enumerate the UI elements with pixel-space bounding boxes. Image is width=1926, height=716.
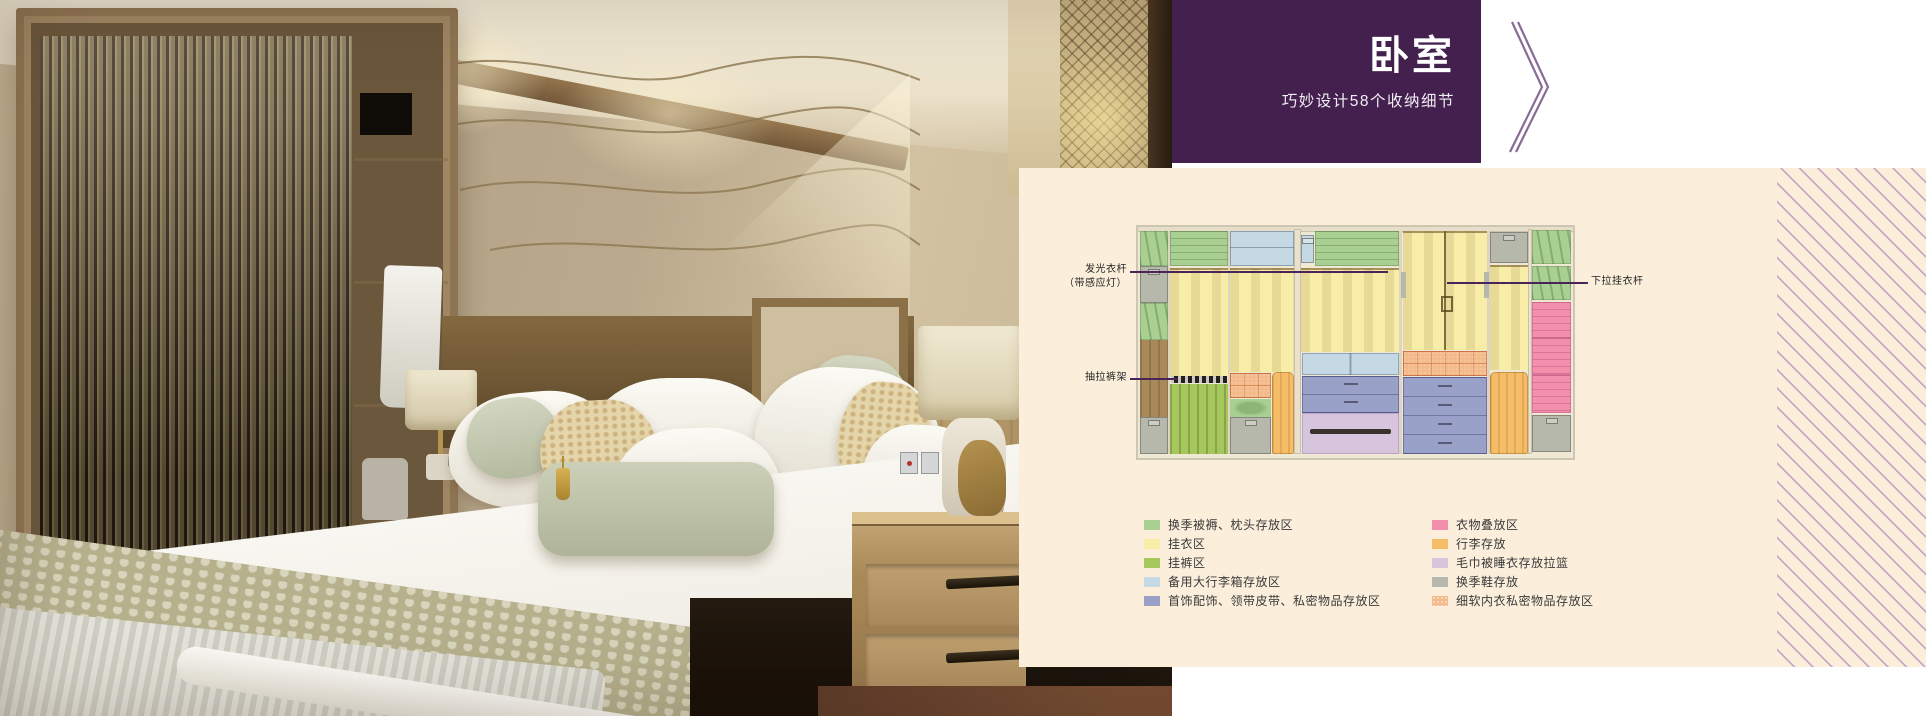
legend-swatch-periwinkle xyxy=(1144,596,1160,606)
wardrobe-zone-gray xyxy=(1140,417,1168,454)
legend-swatch-lilac xyxy=(1432,558,1448,568)
wardrobe-zone-orange xyxy=(1490,372,1528,454)
lumbar-pillow xyxy=(538,462,774,556)
wardrobe-zone-gray xyxy=(1532,415,1571,452)
wardrobe-zone-lightblue xyxy=(1301,235,1314,263)
photo-closet xyxy=(16,8,458,568)
storage-diagram-panel: 发光衣杆 （带感应灯） 抽拉裤架 下拉挂衣杆 换季被褥、枕头存放区挂衣区挂裤区备… xyxy=(1019,168,1926,667)
wardrobe-zone-yellow xyxy=(1230,268,1294,372)
right-lamp xyxy=(918,326,1022,420)
legend-item: 首饰配饰、领带皮带、私密物品存放区 xyxy=(1144,591,1381,610)
right-lamp-base-gold xyxy=(958,440,1006,516)
closet-bag xyxy=(362,458,408,520)
wardrobe-zone-yellow xyxy=(1490,265,1528,370)
wardrobe-zone-orange xyxy=(1272,372,1294,454)
legend-swatch-dotorange xyxy=(1432,596,1448,606)
callout-label-trouser-rack: 抽拉裤架 xyxy=(1021,371,1127,385)
wardrobe-zone-green xyxy=(1140,303,1168,340)
wardrobe-zone-lightblue xyxy=(1230,231,1294,266)
photo-lattice-curtain xyxy=(1060,0,1148,195)
wardrobe-zone-green xyxy=(1140,231,1168,266)
legend-swatch-yellow xyxy=(1144,539,1160,549)
legend-item: 挂裤区 xyxy=(1144,553,1381,572)
wardrobe-zone-pink xyxy=(1532,338,1571,375)
legend-item: 毛巾被睡衣存放拉篮 xyxy=(1432,553,1594,572)
legend-item-label: 挂裤区 xyxy=(1168,554,1206,571)
wall-switch xyxy=(900,452,918,474)
callout-label-luminous-rod: 发光衣杆 （带感应灯） xyxy=(1021,263,1127,291)
diagonal-stripes-decoration xyxy=(1777,168,1926,667)
callout-text: 下拉挂衣杆 xyxy=(1591,275,1644,289)
wardrobe-zone-green xyxy=(1230,399,1271,417)
legend-item: 衣物叠放区 xyxy=(1432,515,1594,534)
wardrobe-zone-gray xyxy=(1230,417,1271,454)
wall-switch xyxy=(921,452,939,474)
legend-item-label: 备用大行李箱存放区 xyxy=(1168,573,1281,590)
wardrobe-zone-sep xyxy=(1399,231,1402,454)
wardrobe-zone-dotorange xyxy=(1230,373,1271,398)
legend-item: 换季鞋存放 xyxy=(1432,572,1594,591)
legend-swatch-lightblue xyxy=(1144,577,1160,587)
legend-item: 换季被褥、枕头存放区 xyxy=(1144,515,1381,534)
wardrobe-zone-sepw xyxy=(1294,229,1301,454)
wardrobe-zone-green xyxy=(1170,231,1228,266)
legend-swatch-green xyxy=(1144,520,1160,530)
pillow-tassel xyxy=(556,468,570,500)
legend-swatch-orange xyxy=(1432,539,1448,549)
wardrobe-zone-gray xyxy=(1490,232,1528,263)
wardrobe-zone-periwinkle xyxy=(1403,377,1487,454)
section-header: 卧室 巧妙设计58个收纳细节 xyxy=(1172,0,1481,163)
wardrobe-zones xyxy=(1138,227,1573,458)
legend-swatch-pink xyxy=(1432,520,1448,530)
callout-line-pulldown-rod xyxy=(1447,282,1588,284)
wardrobe-zone-yellow xyxy=(1403,231,1487,350)
legend-item: 挂衣区 xyxy=(1144,534,1381,553)
left-lamp-stem xyxy=(438,430,443,456)
legend-swatch-gray xyxy=(1432,577,1448,587)
page-title: 卧室 xyxy=(1172,34,1455,78)
photo-floor xyxy=(818,686,1172,716)
wardrobe-zone-yellow xyxy=(1301,268,1399,352)
page: 卧室 巧妙设计58个收纳细节 发光衣杆 （带感应灯） 抽拉裤架 下拉挂衣杆 换季… xyxy=(0,0,1926,716)
wardrobe-zone-lightblue xyxy=(1302,353,1399,375)
chevron-right-icon xyxy=(1498,14,1554,158)
page-subtitle: 巧妙设计58个收纳细节 xyxy=(1172,89,1455,111)
wardrobe-zone-pink xyxy=(1532,375,1571,413)
legend-column-right: 衣物叠放区行李存放毛巾被睡衣存放拉篮换季鞋存放细软内衣私密物品存放区 xyxy=(1432,515,1594,610)
photo-window-frame xyxy=(1148,0,1172,195)
wardrobe-zone-gray xyxy=(1484,272,1489,298)
legend-item-label: 换季被褥、枕头存放区 xyxy=(1168,516,1293,533)
wardrobe-diagram xyxy=(1138,227,1573,458)
legend-item-label: 衣物叠放区 xyxy=(1456,516,1519,533)
callout-line-trouser-rack xyxy=(1130,378,1177,380)
closet-box xyxy=(360,93,412,135)
legend-item: 备用大行李箱存放区 xyxy=(1144,572,1381,591)
legend-item-label: 行李存放 xyxy=(1456,535,1506,552)
wardrobe-zone-pink xyxy=(1532,302,1571,338)
wardrobe-zone-gray xyxy=(1401,272,1406,298)
legend-item-label: 挂衣区 xyxy=(1168,535,1206,552)
wardrobe-zone-lilac xyxy=(1302,413,1399,454)
callout-text: 发光衣杆 xyxy=(1021,263,1127,277)
legend-swatch-yellowgreen xyxy=(1144,558,1160,568)
callout-line-luminous-rod xyxy=(1130,271,1388,273)
wardrobe-zone-periwinkle xyxy=(1302,376,1399,413)
wardrobe-zone-dotorange xyxy=(1403,351,1487,376)
callout-label-pulldown-rod: 下拉挂衣杆 xyxy=(1591,275,1644,289)
legend-item: 行李存放 xyxy=(1432,534,1594,553)
callout-text: （带感应灯） xyxy=(1021,277,1127,291)
legend-item-label: 首饰配饰、领带皮带、私密物品存放区 xyxy=(1168,592,1381,609)
wardrobe-zone-rack xyxy=(1171,376,1227,383)
bedroom-photo xyxy=(0,0,1172,716)
wardrobe-zone-green xyxy=(1532,230,1571,264)
wardrobe-zone-yellowgreen xyxy=(1170,384,1228,454)
legend-item-label: 毛巾被睡衣存放拉篮 xyxy=(1456,554,1569,571)
legend-column-left: 换季被褥、枕头存放区挂衣区挂裤区备用大行李箱存放区首饰配饰、领带皮带、私密物品存… xyxy=(1144,515,1381,610)
photo-sheer-curtain xyxy=(1008,0,1060,195)
legend-item: 细软内衣私密物品存放区 xyxy=(1432,591,1594,610)
legend-item-label: 换季鞋存放 xyxy=(1456,573,1519,590)
wardrobe-zone-green xyxy=(1315,231,1399,266)
legend-item-label: 细软内衣私密物品存放区 xyxy=(1456,592,1594,609)
wardrobe-zone-yellow xyxy=(1170,268,1228,376)
callout-text: 抽拉裤架 xyxy=(1021,371,1127,385)
closet-slat-door xyxy=(40,36,352,554)
